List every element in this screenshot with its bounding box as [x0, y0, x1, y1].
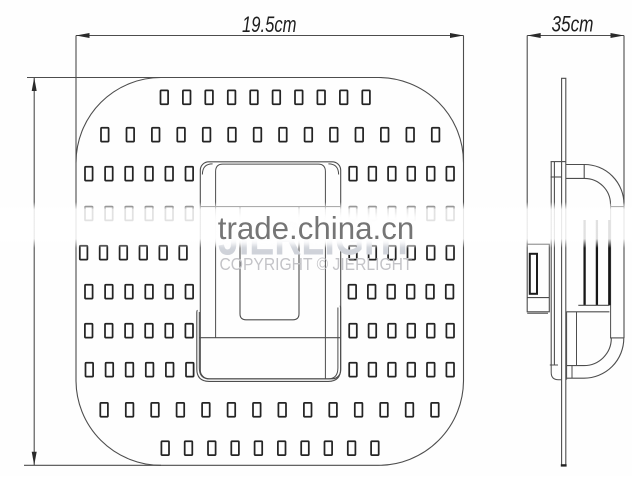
svg-text:trade.china.cn: trade.china.cn — [218, 210, 415, 246]
svg-text:COPYRIGHT © JIERLIGHT: COPYRIGHT © JIERLIGHT — [220, 254, 413, 274]
svg-text:35cm: 35cm — [552, 12, 594, 37]
svg-text:19.5cm: 19.5cm — [242, 12, 297, 37]
